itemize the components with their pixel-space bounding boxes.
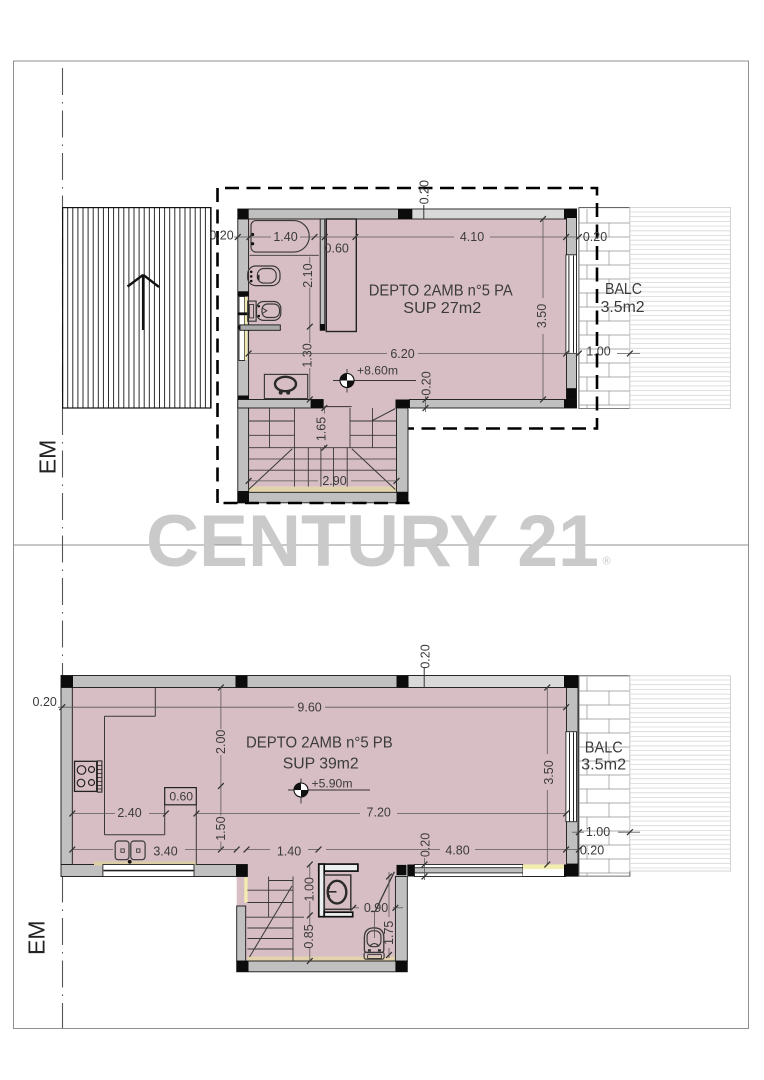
svg-text:2.10: 2.10 — [301, 263, 315, 287]
svg-text:0.20: 0.20 — [580, 843, 604, 857]
svg-text:SUP 39m2: SUP 39m2 — [283, 756, 359, 773]
svg-text:DEPTO 2AMB n°5 PA: DEPTO 2AMB n°5 PA — [369, 282, 513, 299]
svg-text:1.65: 1.65 — [315, 417, 329, 441]
svg-text:0.20: 0.20 — [583, 230, 607, 244]
svg-text:0.20: 0.20 — [418, 180, 432, 204]
svg-text:1.50: 1.50 — [214, 816, 228, 840]
svg-text:1.00: 1.00 — [586, 345, 610, 359]
svg-text:0.20: 0.20 — [420, 371, 434, 395]
svg-text:3.50: 3.50 — [535, 304, 549, 328]
svg-text:2.00: 2.00 — [214, 730, 228, 754]
svg-text:0.60: 0.60 — [325, 242, 349, 256]
svg-text:0.20: 0.20 — [419, 833, 433, 857]
svg-text:0.20: 0.20 — [418, 644, 432, 668]
svg-text:4.80: 4.80 — [445, 844, 469, 858]
svg-text:1.00: 1.00 — [586, 825, 610, 839]
svg-text:2.40: 2.40 — [117, 806, 141, 820]
svg-text:6.20: 6.20 — [390, 347, 414, 361]
svg-text:0.20: 0.20 — [209, 229, 233, 243]
svg-text:0.60: 0.60 — [169, 790, 193, 804]
svg-text:7.20: 7.20 — [367, 806, 391, 820]
svg-text:BALC: BALC — [585, 740, 623, 757]
svg-text:SUP 27m2: SUP 27m2 — [403, 300, 481, 317]
svg-text:0.20: 0.20 — [33, 695, 57, 709]
svg-text:3.5m2: 3.5m2 — [601, 299, 645, 316]
svg-text:2.90: 2.90 — [322, 474, 346, 488]
svg-text:1.40: 1.40 — [273, 230, 297, 244]
svg-text:3.5m2: 3.5m2 — [581, 757, 626, 774]
svg-text:®: ® — [603, 556, 611, 568]
svg-text:CENTURY 21: CENTURY 21 — [146, 501, 599, 582]
svg-text:DEPTO 2AMB n°5 PB: DEPTO 2AMB n°5 PB — [246, 734, 393, 751]
svg-text:4.10: 4.10 — [460, 230, 484, 244]
svg-text:0.85: 0.85 — [302, 924, 316, 948]
svg-text:1.00: 1.00 — [303, 877, 317, 901]
svg-text:1.30: 1.30 — [300, 343, 314, 367]
svg-text:1.75: 1.75 — [382, 921, 396, 945]
svg-text:BALC: BALC — [605, 281, 642, 298]
svg-text:+8.60m: +8.60m — [357, 364, 398, 378]
svg-text:EM: EM — [34, 440, 60, 475]
svg-text:+5.90m: +5.90m — [312, 777, 353, 791]
svg-text:3.40: 3.40 — [153, 844, 177, 858]
svg-text:9.60: 9.60 — [297, 701, 321, 715]
svg-text:1.40: 1.40 — [277, 844, 301, 858]
svg-text:0.90: 0.90 — [364, 901, 388, 915]
svg-text:EM: EM — [24, 920, 50, 955]
svg-text:3.50: 3.50 — [542, 760, 556, 784]
